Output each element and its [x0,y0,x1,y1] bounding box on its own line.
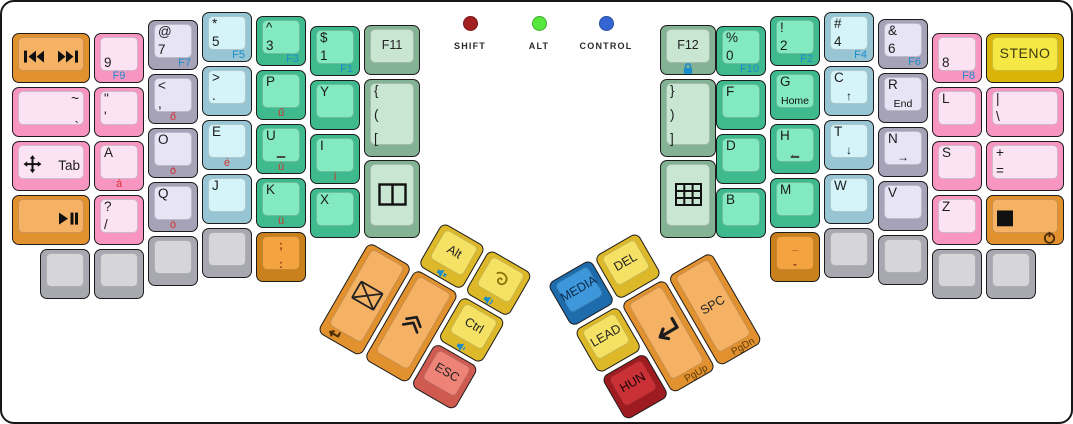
next-track-icon [57,50,79,64]
keytop-surface [208,232,246,266]
key-close-brackets[interactable]: })] [660,79,716,157]
key-period[interactable]: >. [202,66,252,116]
key-2[interactable]: !2F2 [770,16,820,66]
key-label: 5 [212,35,220,49]
key-quote[interactable]: "' [94,87,144,137]
keytop-surface [154,240,192,274]
key-label: @ [158,25,172,39]
key-label: 2 [780,39,788,53]
shift-indicator-dot [463,16,478,31]
key-label: - [771,258,819,271]
key-label: = [996,164,1004,178]
key-u[interactable]: Uú [256,124,306,174]
key-label: ü [257,216,305,228]
key-comma[interactable]: <,ő [148,74,198,124]
key-label: " [104,92,109,106]
key-a[interactable]: Aá [94,141,144,191]
key-label: F6 [908,57,921,69]
key-label: N [888,132,898,146]
key-label: + [996,146,1004,160]
key-blank-r1[interactable] [824,228,874,278]
control-indicator-label: CONTROL [561,41,651,51]
key-label: T [834,125,842,139]
key-label: K [266,183,275,197]
key-label: F [726,85,734,99]
key-blank-r2[interactable] [878,235,928,285]
key-label: V [888,186,897,200]
key-5[interactable]: *5F5 [202,12,252,62]
debian-swirl-icon [470,250,531,308]
key-pipe-backslash[interactable]: |\ [986,87,1064,137]
key-label: F12 [661,26,715,65]
key-label: ű [257,108,305,120]
key-0[interactable]: %0F10 [716,26,766,76]
power-icon [1043,231,1056,244]
key-q[interactable]: Qö [148,182,198,232]
key-label: F5 [232,50,245,62]
keypad-grid-icon [661,161,715,228]
keytop-surface [992,253,1030,287]
key-label: M [780,183,791,197]
key-underscore-minus[interactable]: _- [770,232,820,282]
control-indicator-dot [599,16,614,31]
key-7[interactable]: @7F7 [148,20,198,70]
key-label: J [212,179,219,193]
key-open-brackets[interactable]: {([ [364,79,420,157]
key-label: > [212,71,220,85]
key-label: < [158,79,166,93]
key-blank-r3[interactable] [932,249,982,299]
key-r[interactable]: REnd [878,73,928,123]
key-label: / [104,218,108,232]
key-m[interactable]: M [770,178,820,228]
key-j[interactable]: J [202,174,252,224]
key-label: í [311,172,359,184]
key-label: Y [320,85,329,99]
key-label: I [320,139,324,153]
keytop-surface [830,232,868,266]
key-blank-l3[interactable] [148,236,198,286]
lock-icon [683,63,694,75]
key-label: & [888,24,897,38]
key-v[interactable]: V [878,181,928,231]
key-label: 8 [942,56,950,70]
key-label: F8 [962,71,975,83]
key-6[interactable]: &6F6 [878,19,928,69]
key-label: 9 [104,56,112,70]
key-label: ↑ [825,90,873,103]
keytop-surface [992,91,1058,125]
key-tab[interactable]: Tab [12,141,90,191]
key-p[interactable]: Pű [256,70,306,120]
key-label: G [780,75,791,89]
key-label: } [670,84,675,98]
key-label: : [257,258,305,271]
key-label: ( [374,108,379,122]
key-label: H [780,129,790,143]
key-label: Tab [58,159,80,173]
key-d[interactable]: D [716,134,766,184]
key-label: F1 [340,64,353,76]
key-label: [ [374,132,378,146]
key-w[interactable]: W [824,174,874,224]
key-f[interactable]: F [716,80,766,130]
key-blank-l1[interactable] [40,249,90,299]
keytop-surface [938,253,976,287]
key-label: . [212,89,216,103]
key-label: ! [780,21,784,35]
key-b[interactable]: B [716,188,766,238]
key-keypad[interactable] [660,160,716,238]
key-label: ↓ [825,144,873,157]
keyboard-layout-board: SHIFTALTCONTROL ~`Tab9F9"'Aá?/@7F7<,őOóQ… [0,0,1073,424]
key-label: ^ [266,21,272,35]
key-label: C [834,71,844,85]
key-label: ] [670,132,674,146]
key-1[interactable]: $1F1 [310,26,360,76]
key-label: | [996,92,1000,106]
key-label: \ [996,110,1000,124]
key-label: F9 [95,71,143,83]
key-label: B [726,193,735,207]
key-label: 7 [158,43,166,57]
key-label: E [212,125,221,139]
homing-bar [277,156,286,159]
key-label: $ [320,31,328,45]
key-label: F3 [286,54,299,66]
key-3[interactable]: ^3F3 [256,16,306,66]
key-label: { [374,84,379,98]
key-4[interactable]: #4F4 [824,12,874,62]
key-semicolon-colon[interactable]: ;: [256,232,306,282]
key-i[interactable]: Ií [310,134,360,184]
alt-indicator-dot [532,16,547,31]
homing-bar [791,156,800,159]
key-blank-r4[interactable] [986,249,1036,299]
key-s[interactable]: S [932,141,982,191]
key-blank-l2[interactable] [94,249,144,299]
keytop-surface [46,253,84,287]
key-label: ö [149,220,197,232]
key-f11[interactable]: F11 [364,25,420,75]
play-pause-icon [58,212,79,226]
key-n[interactable]: N→ [878,127,928,177]
key-label: F10 [740,64,759,76]
key-label: ó [149,166,197,178]
key-media-prev-next[interactable] [12,33,90,83]
key-t[interactable]: T↓ [824,120,874,170]
key-label: 0 [726,49,734,63]
key-label: á [95,179,143,191]
key-label: Z [942,200,950,214]
key-g[interactable]: GHome [770,70,820,120]
key-play-pause[interactable] [12,195,90,245]
key-label: W [834,179,847,193]
key-label: L [942,92,950,106]
window-split-icon [365,161,419,228]
key-label: F11 [365,26,419,65]
key-label: , [158,97,162,111]
key-y[interactable]: Y [310,80,360,130]
key-label: F7 [178,58,191,70]
key-label: D [726,139,736,153]
key-h[interactable]: H← [770,124,820,174]
key-label: STENO [987,34,1063,73]
key-label: ) [670,108,675,122]
key-o[interactable]: Oó [148,128,198,178]
stop-icon [997,210,1013,226]
key-label: ` [75,120,80,134]
key-label: # [834,17,842,31]
key-label: * [212,17,217,31]
key-e[interactable]: Eé [202,120,252,170]
key-z[interactable]: Z [932,195,982,245]
key-label: ú [257,162,305,174]
key-label: é [203,158,251,170]
key-l[interactable]: L [932,87,982,137]
key-question-slash[interactable]: ?/ [94,195,144,245]
key-label: F4 [854,50,867,62]
key-tilde-backtick[interactable]: ~` [12,87,90,137]
keytop-surface [884,239,922,273]
key-f12[interactable]: F12 [660,25,716,75]
key-label: ; [257,239,305,252]
key-label: End [879,99,927,110]
key-blank-l4[interactable] [202,228,252,278]
key-label: 1 [320,49,328,63]
keytop-surface [100,253,138,287]
key-stop-power[interactable] [986,195,1064,245]
key-label: F2 [800,54,813,66]
key-label: U [266,129,276,143]
move-icon [23,155,42,174]
prev-track-icon [23,50,45,64]
key-label: X [320,193,329,207]
key-label: O [158,133,169,147]
key-label: P [266,75,275,89]
key-label: S [942,146,951,160]
key-window-split[interactable] [364,160,420,238]
key-label: Home [771,96,819,107]
key-label: % [726,31,738,45]
key-label: Q [158,187,169,201]
key-label: ~ [71,92,79,106]
key-label: ' [104,110,107,124]
key-c[interactable]: C↑ [824,66,874,116]
key-label: 6 [888,42,896,56]
key-k[interactable]: Kü [256,178,306,228]
key-steno[interactable]: STENO [986,33,1064,83]
key-label: R [888,78,898,92]
key-label: ő [149,112,197,124]
key-label: → [879,151,927,164]
key-label: _ [771,239,819,252]
key-8[interactable]: 8F8 [932,33,982,83]
key-label: A [104,146,113,160]
key-label: 3 [266,39,274,53]
key-x[interactable]: X [310,188,360,238]
key-plus-equals[interactable]: += [986,141,1064,191]
key-label: ? [104,200,112,214]
key-label: 4 [834,35,842,49]
key-9[interactable]: 9F9 [94,33,144,83]
